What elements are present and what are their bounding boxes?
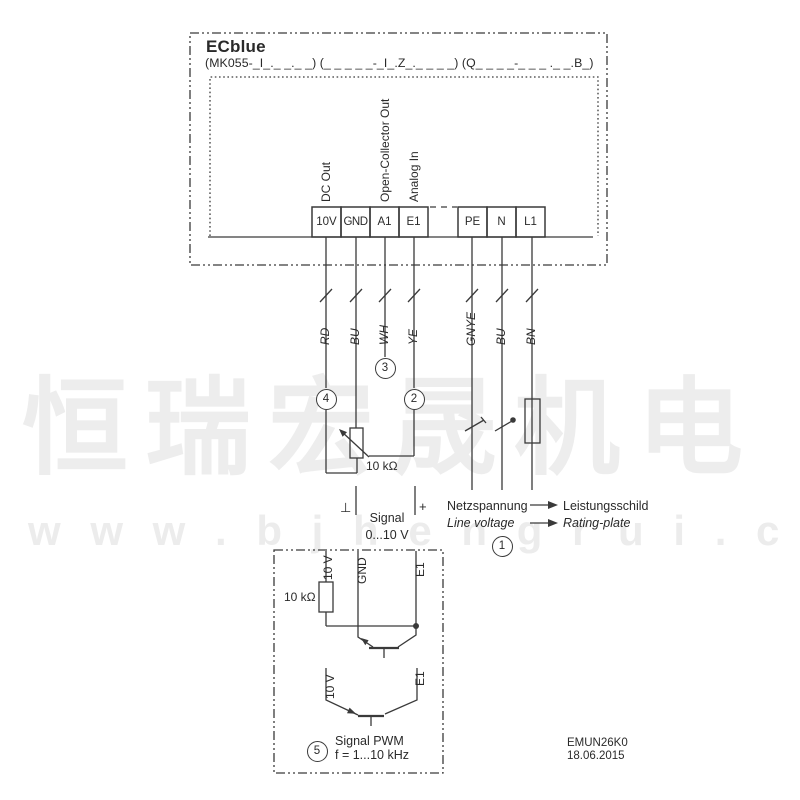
pwm-frequency: f = 1...10 kHz: [335, 748, 409, 762]
wire-label-rd: RD: [319, 328, 332, 345]
plate-label-en: Rating-plate: [563, 516, 630, 530]
transistor1-arrow: [361, 638, 369, 645]
potentiometer: [339, 428, 369, 458]
pullup-resistor: [319, 582, 333, 612]
terminal-l1: L1: [516, 213, 545, 231]
pwm-gnd-label: GND: [356, 557, 369, 584]
wire-label-bu: BU: [349, 328, 362, 345]
reference-arrows: [530, 501, 558, 527]
label-dc-out: DC Out: [320, 162, 333, 202]
signal-wires: [326, 237, 414, 473]
terminal-pe: PE: [458, 213, 487, 231]
terminal-10v: 10V: [312, 213, 341, 231]
pwm-title: Signal PWM: [335, 734, 404, 748]
mains-label-en: Line voltage: [447, 516, 514, 530]
wire-label-wh: WH: [378, 325, 391, 345]
terminal-e1: E1: [399, 213, 428, 231]
doc-number: EMUN26K0: [567, 736, 628, 750]
pwm-input2-label: E1: [414, 671, 427, 686]
wire-break-marks: [320, 289, 538, 302]
transistor2-arrow: [347, 708, 356, 714]
terminal-gnd: GND: [341, 213, 370, 231]
device-model-line: (MK055-_I_._ _._ _) (_ _ _ _ _-_I_.Z_._ …: [205, 56, 594, 70]
callout-4: 4: [316, 389, 337, 410]
terminal-n: N: [487, 213, 516, 231]
switch-symbol-gnye: [465, 417, 486, 431]
wire-label-bn: BN: [525, 328, 538, 345]
callout-5: 5: [307, 741, 328, 762]
label-analog-in: Analog In: [408, 151, 421, 202]
pwm-input1-label: E1: [414, 562, 427, 577]
switch-symbol-bu: [495, 421, 512, 431]
signal-minus-symbol: ⊥: [340, 501, 351, 515]
callout-3: 3: [375, 358, 396, 379]
mains-label-de: Netzspannung: [447, 499, 528, 513]
signal-label: Signal: [359, 511, 415, 525]
pwm-circuit-2: [326, 668, 417, 726]
wire-label-ye: YE: [407, 329, 420, 345]
wire-label-gnye: GNYE: [465, 312, 478, 346]
pwm-resistor-value: 10 kΩ: [284, 590, 316, 604]
mains-wires: [472, 237, 532, 490]
wiring-diagram-page: 恒瑞宏晟机电 w w w . b j h e n g r u i . c n: [0, 0, 800, 800]
pot-value: 10 kΩ: [366, 459, 398, 473]
transistor1-right-leg: [398, 626, 416, 647]
signal-range: 0...10 V: [359, 528, 415, 542]
pwm-rail2-label: 10 V: [324, 674, 337, 699]
pwm-rail1-label: 10 V: [322, 555, 335, 580]
signal-plus-symbol: +: [419, 500, 427, 514]
callout-2: 2: [404, 389, 425, 410]
plate-label-de: Leistungsschild: [563, 499, 648, 513]
wire-rd: [326, 237, 357, 473]
label-open-collector-out: Open-Collector Out: [379, 99, 392, 202]
callout-1: 1: [492, 536, 513, 557]
doc-date: 18.06.2015: [567, 749, 625, 763]
schematic-linework: [0, 0, 800, 800]
switch-dot: [510, 417, 516, 423]
wire-label-bu2: BU: [495, 328, 508, 345]
terminal-a1: A1: [370, 213, 399, 231]
device-title: ECblue: [206, 37, 266, 57]
